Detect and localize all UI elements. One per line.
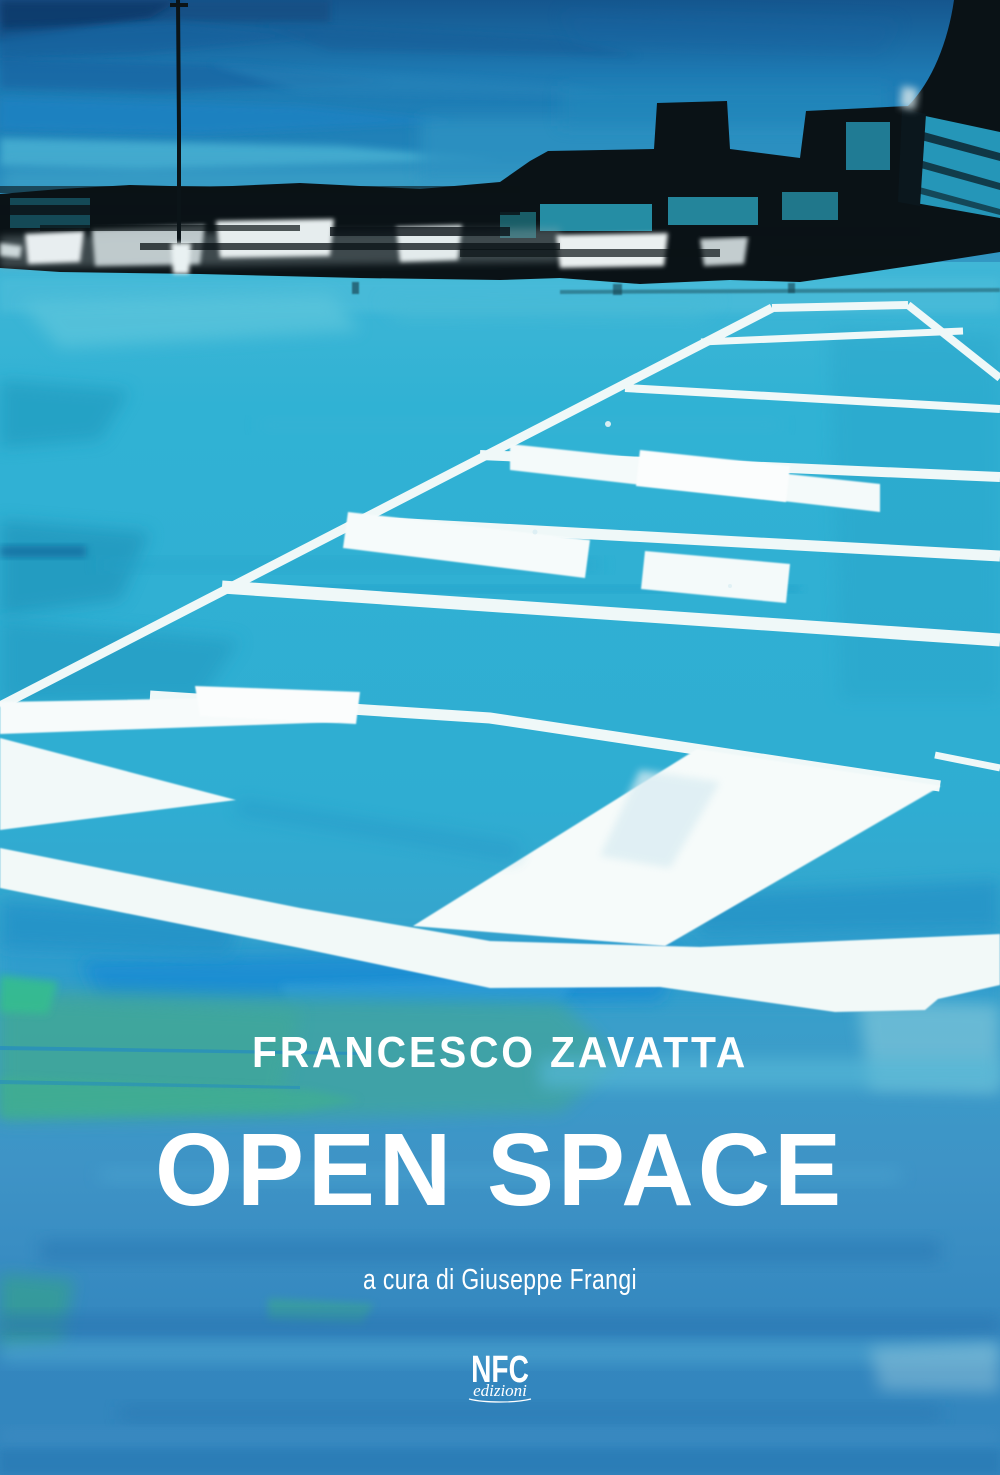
svg-text:FRANCESCO ZAVATTA: FRANCESCO ZAVATTA (252, 1028, 748, 1077)
svg-text:OPEN SPACE: OPEN SPACE (155, 1112, 845, 1227)
svg-text:edizioni: edizioni (473, 1381, 527, 1400)
svg-text:a cura di Giuseppe Frangi: a cura di Giuseppe Frangi (363, 1264, 637, 1296)
